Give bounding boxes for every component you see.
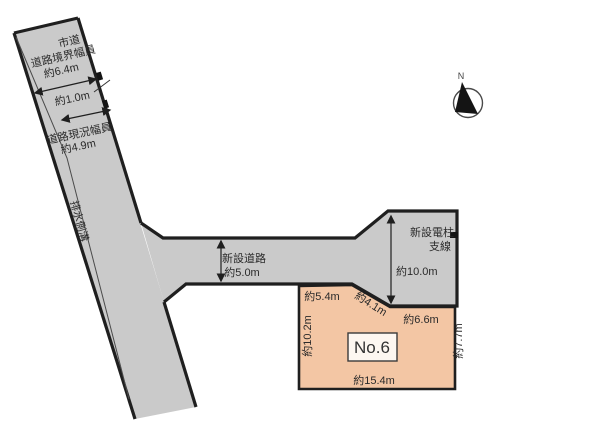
plot-map-svg: 市道 道路境界幅員 約6.4m 約1.0m 道路現況幅員 約4.9m 排水側溝 … (0, 0, 600, 439)
north-label: N (458, 71, 465, 81)
lot-edge-bottom: 約15.4m (353, 373, 395, 387)
lot-edge-top-right: 約6.6m (403, 312, 438, 326)
lot-edge-right: 約7.7m (451, 323, 465, 358)
new-pole-stay-label: 支線 (429, 239, 451, 253)
lot-number: No.6 (354, 338, 390, 357)
new-pole-label: 新設電柱 (410, 225, 454, 239)
new-road-depth-value: 約10.0m (396, 264, 438, 278)
new-road-width-value: 約5.0m (224, 265, 259, 279)
lot-edge-left: 約10.2m (300, 315, 314, 357)
plot-map-canvas: 市道 道路境界幅員 約6.4m 約1.0m 道路現況幅員 約4.9m 排水側溝 … (0, 0, 600, 439)
new-road-label: 新設道路 (222, 251, 266, 265)
lot-edge-top-left: 約5.4m (304, 289, 339, 303)
